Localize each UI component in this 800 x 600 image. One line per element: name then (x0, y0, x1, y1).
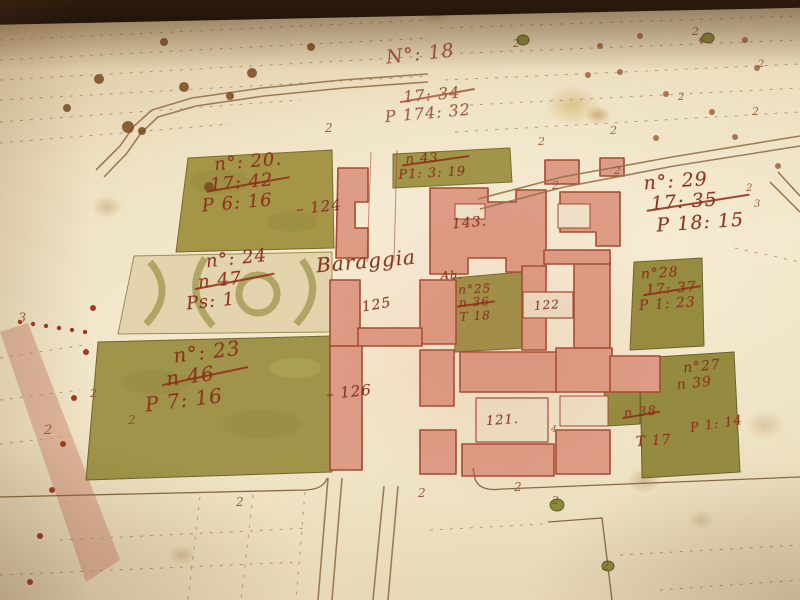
olive-parcels (86, 148, 740, 480)
parcel-25-shape (453, 272, 524, 352)
map-graphics (0, 0, 800, 600)
parcel-20-shape (176, 150, 334, 252)
photograph-of-historical-map: N°: 1817: 34P 174: 32n°: 20.17: 42P 6: 1… (0, 0, 800, 600)
parcel-43-shape (393, 148, 512, 188)
parcel-23-shape (86, 336, 332, 480)
parcel-28-shape (630, 258, 704, 350)
